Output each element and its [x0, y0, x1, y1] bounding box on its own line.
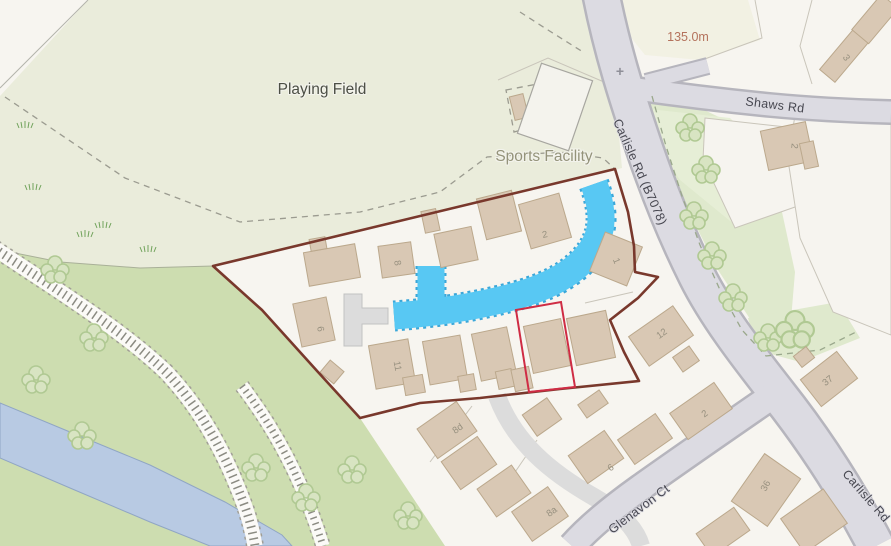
- map-canvas[interactable]: Playing Field Sports Facility Shaws Rd C…: [0, 0, 891, 546]
- map-render: [0, 0, 891, 546]
